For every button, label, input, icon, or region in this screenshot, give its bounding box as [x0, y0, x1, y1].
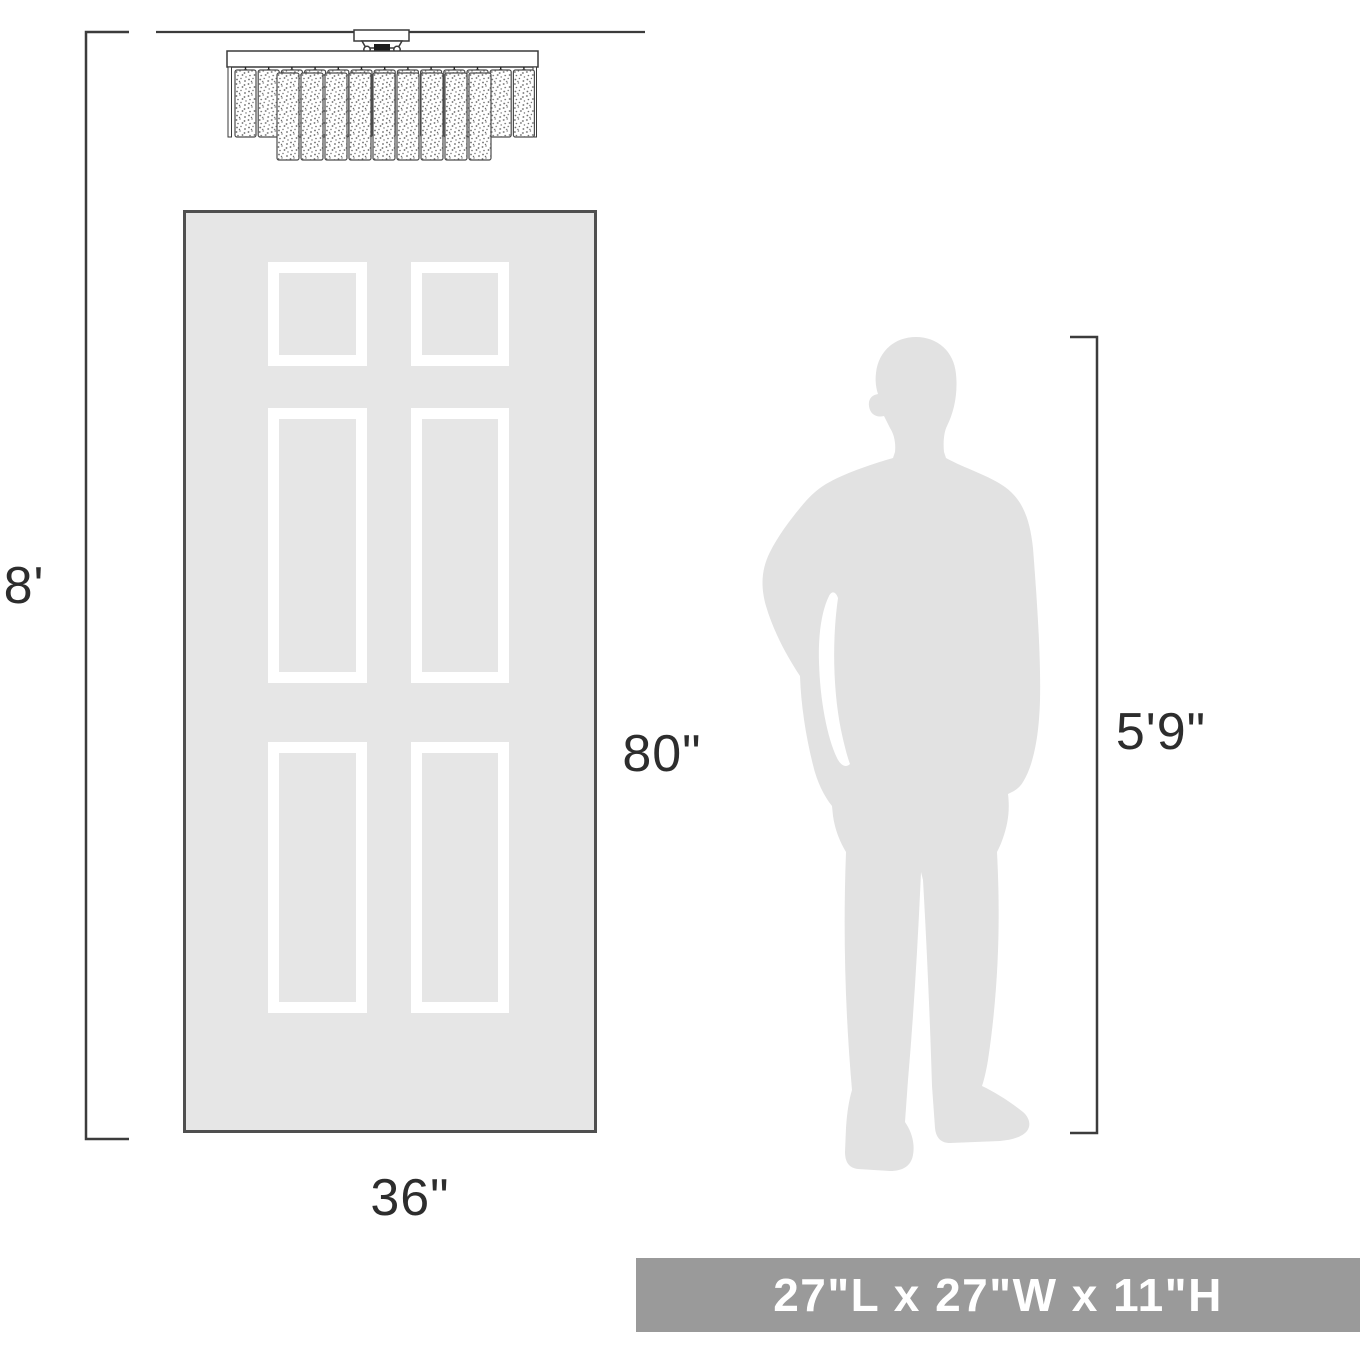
door-width-label: 36": [360, 1172, 460, 1224]
door-panel-top-left: [268, 262, 367, 366]
ceiling-height-label: 8': [0, 560, 52, 612]
door-panel-middle-left: [268, 408, 367, 683]
product-dimensions-banner: 27"L x 27"W x 11"H: [636, 1258, 1360, 1332]
size-comparison-diagram: 8' 80" 36" 5'9" 27"L x 27"W x 11"H: [0, 0, 1360, 1360]
fixture-canopy: [354, 30, 409, 41]
person-silhouette: [763, 337, 1041, 1171]
door-panel-bottom-right: [411, 742, 509, 1013]
fixture-frame: [227, 51, 538, 67]
door-panel-top-right: [411, 262, 509, 366]
person-height-dimension-line: [1070, 337, 1097, 1133]
product-dimensions-text: 27"L x 27"W x 11"H: [773, 1268, 1223, 1322]
door-illustration: [183, 210, 597, 1133]
person-height-label: 5'9": [1106, 706, 1216, 758]
door-height-label: 80": [612, 728, 712, 780]
door-panel-middle-right: [411, 408, 509, 683]
door-panel-bottom-left: [268, 742, 367, 1013]
ceiling-light-fixture: [227, 30, 538, 160]
fixture-crystal-row-front: [277, 73, 491, 160]
ceiling-height-dimension-line: [86, 32, 129, 1139]
